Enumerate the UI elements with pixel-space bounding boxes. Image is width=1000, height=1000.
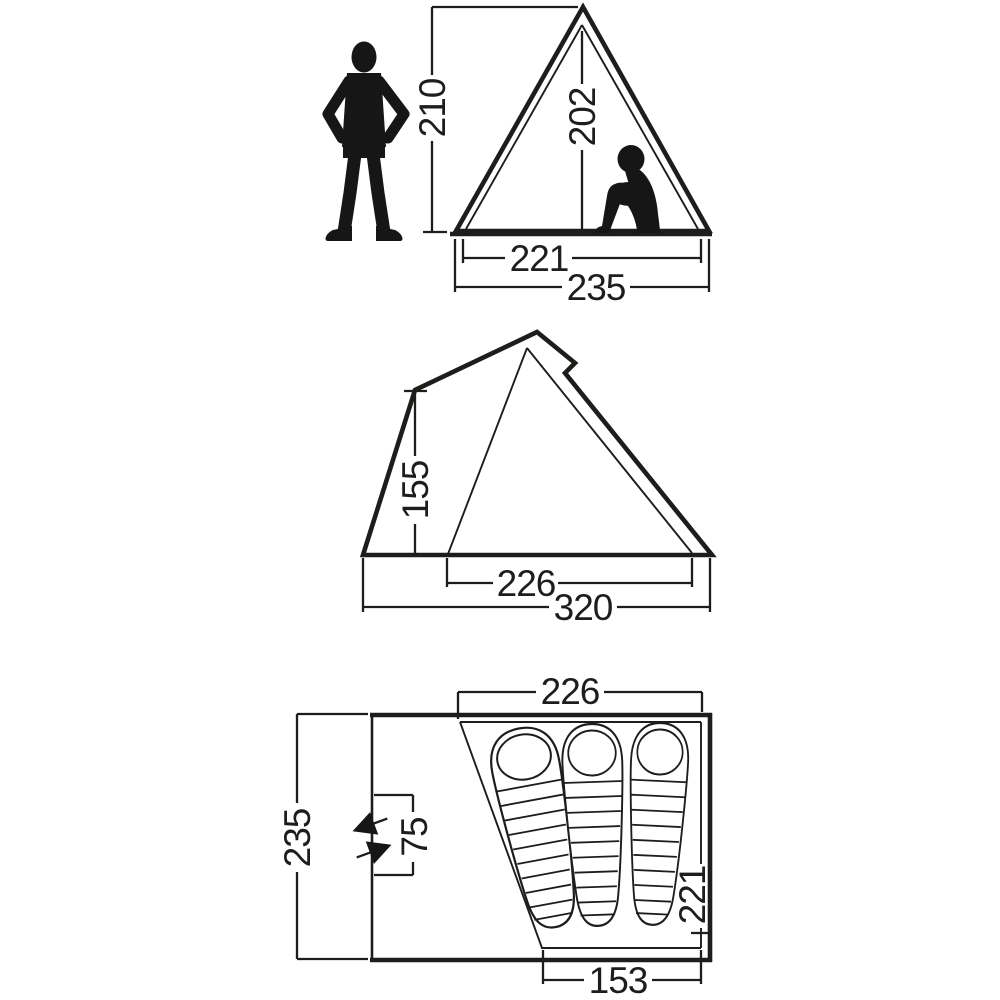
dim-label-floor-door-width: 75 — [394, 817, 435, 857]
standing-person-silhouette — [326, 42, 404, 242]
dim-label-side-outer-depth: 320 — [554, 587, 613, 628]
dim-label-floor-inner-width-top: 226 — [541, 671, 600, 712]
sitting-person-silhouette — [595, 145, 660, 233]
dim-label-front-inner-height: 202 — [562, 88, 603, 147]
dim-label-front-outer-width: 235 — [567, 267, 626, 308]
tent-dimension-diagram: 210 202 221 235 — [0, 0, 1000, 1000]
side-view: 155 226 320 — [363, 332, 712, 628]
dimension-floor-inner-length: 221 — [672, 866, 713, 933]
dim-label-floor-inner-width-bottom: 153 — [589, 960, 648, 1000]
dim-label-side-inner-depth: 226 — [497, 563, 556, 604]
dimension-floor-outer-depth: 235 — [277, 714, 368, 959]
dim-label-front-inner-width: 221 — [510, 238, 569, 279]
dim-label-side-front-height: 155 — [395, 460, 436, 519]
dimension-front-inner-height: 202 — [562, 31, 603, 230]
diagram-canvas: 210 202 221 235 — [0, 0, 1000, 1000]
dimension-floor-door-width: 75 — [374, 795, 435, 875]
dimension-front-standing-height: 210 — [412, 7, 578, 232]
dim-label-front-standing-height: 210 — [412, 78, 453, 137]
dimension-floor-inner-width-bottom: 153 — [543, 950, 701, 1000]
floor-plan: 226 235 75 — [277, 671, 713, 1000]
dim-label-floor-outer-depth: 235 — [277, 808, 318, 867]
dimension-side-front-height: 155 — [395, 391, 436, 553]
dimension-front-outer-width: 235 — [455, 239, 709, 308]
front-view: 210 202 221 235 — [326, 7, 712, 308]
dim-label-floor-inner-length: 221 — [672, 866, 713, 925]
dimension-floor-inner-width-top: 226 — [458, 671, 702, 719]
